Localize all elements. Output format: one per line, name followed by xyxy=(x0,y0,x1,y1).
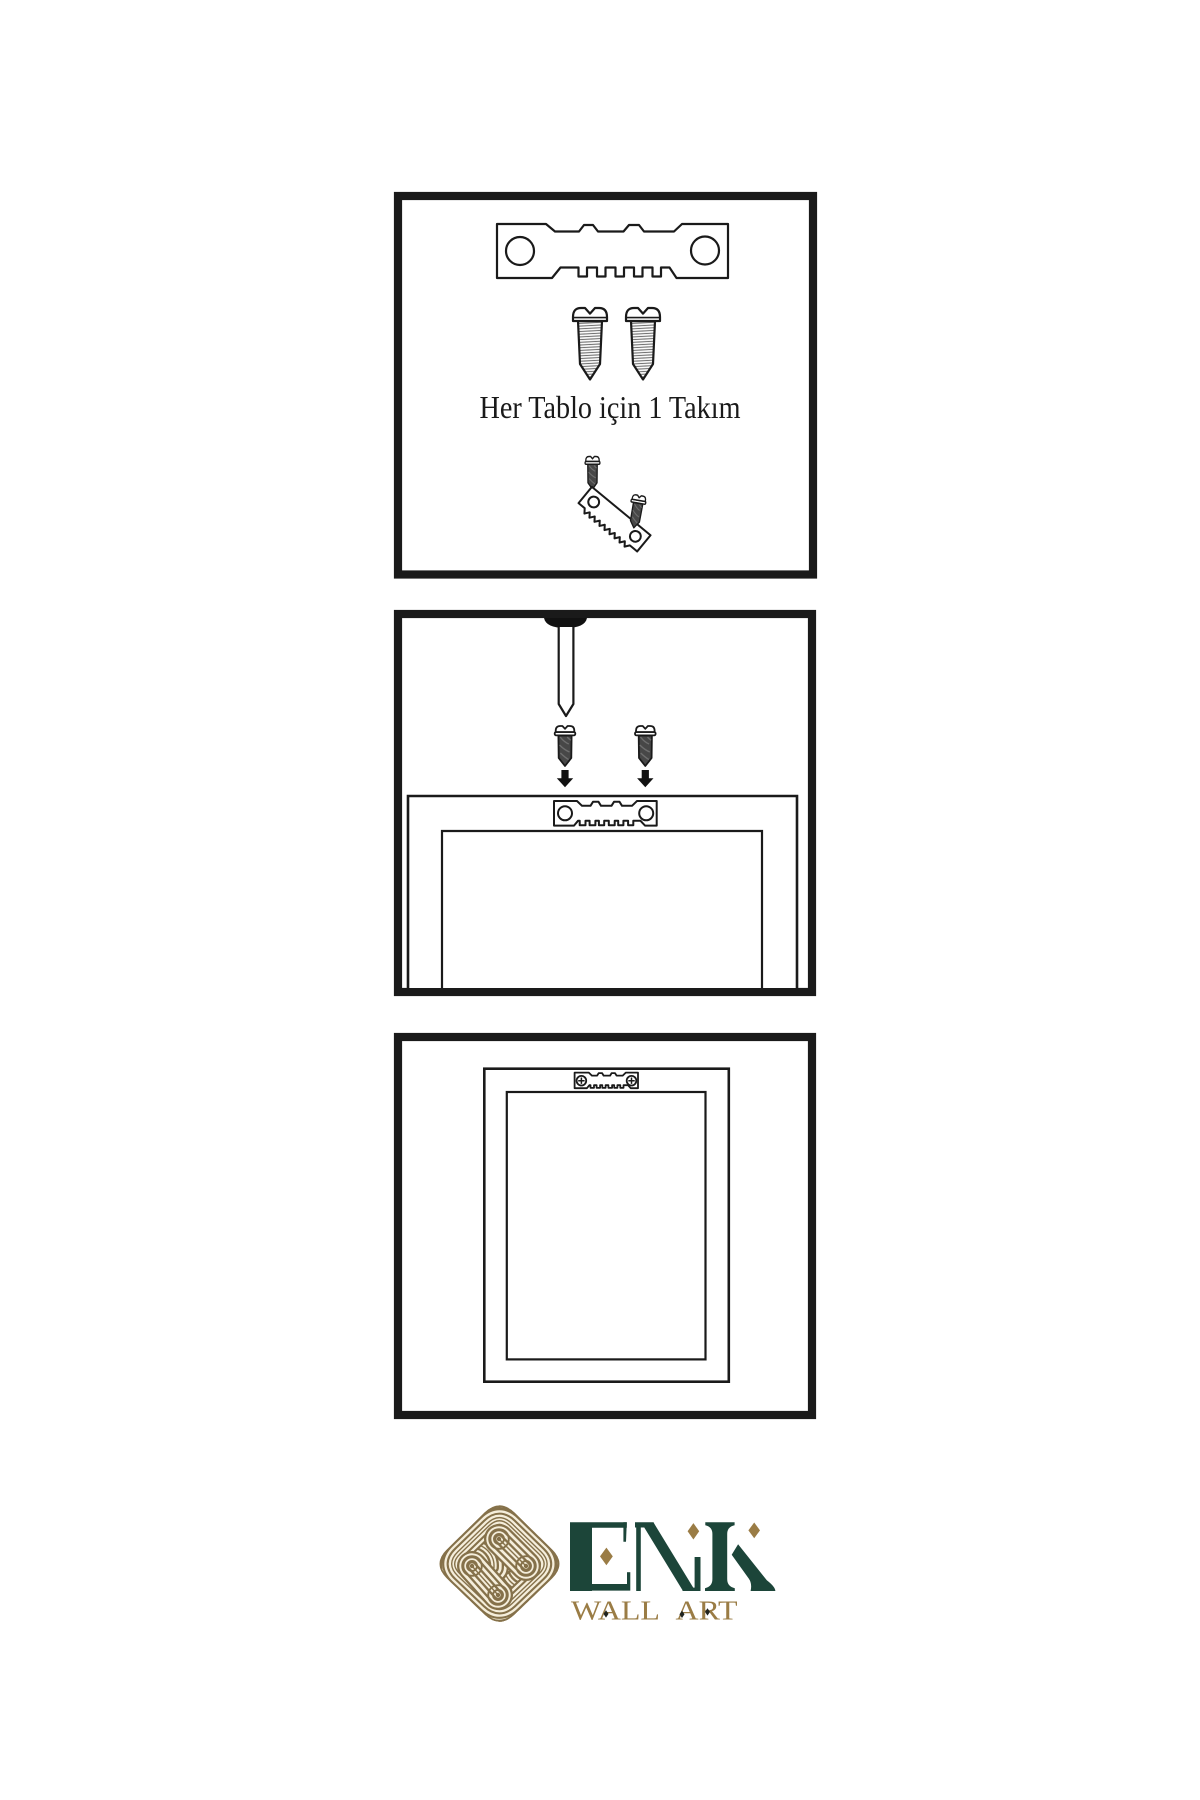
svg-text:WALL: WALL xyxy=(571,1595,660,1626)
svg-text:Her Tablo için 1 Takım: Her Tablo için 1 Takım xyxy=(480,390,741,425)
